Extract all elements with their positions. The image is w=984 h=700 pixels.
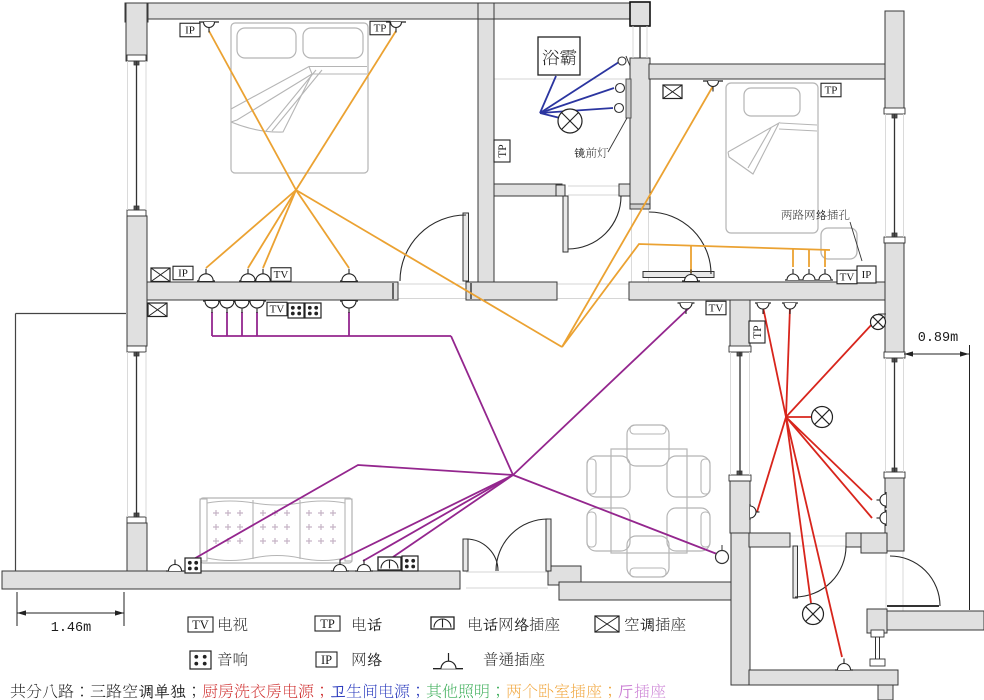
svg-text:0.89m: 0.89m <box>918 331 959 346</box>
svg-text:TP: TP <box>825 85 838 97</box>
svg-text:TP: TP <box>752 325 764 338</box>
svg-text:TV: TV <box>709 303 724 315</box>
svg-text:IP: IP <box>862 269 872 281</box>
svg-text:1.46m: 1.46m <box>51 621 92 636</box>
svg-text:IP: IP <box>185 25 195 37</box>
svg-text:TV: TV <box>192 618 209 632</box>
svg-text:TP: TP <box>320 617 335 631</box>
svg-text:TP: TP <box>374 23 387 35</box>
svg-text:TV: TV <box>274 269 289 281</box>
svg-text:IP: IP <box>321 653 332 667</box>
svg-text:TV: TV <box>270 304 285 316</box>
svg-text:IP: IP <box>178 268 188 280</box>
svg-text:TP: TP <box>497 144 509 157</box>
svg-text:TV: TV <box>840 272 855 284</box>
